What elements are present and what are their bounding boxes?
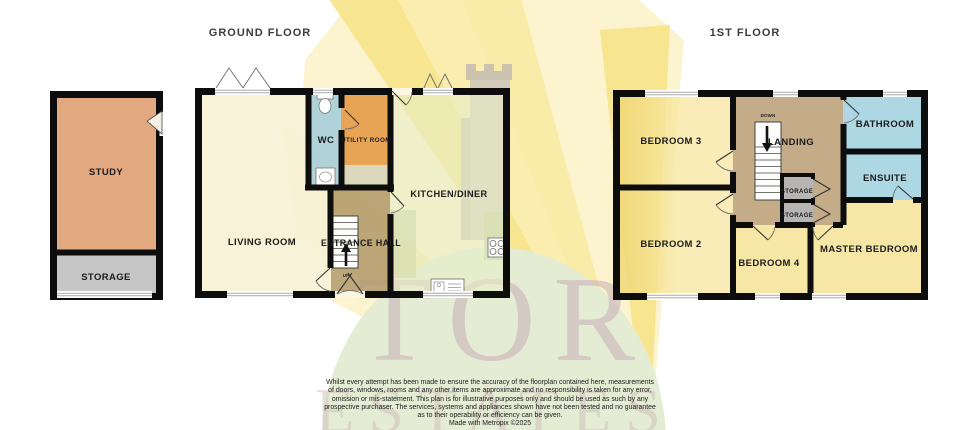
- kitchen-diner-label: KITCHEN/DINER: [410, 189, 487, 199]
- storage-upper-room: [782, 175, 813, 200]
- first-floor-plan: DOWN: [613, 90, 928, 300]
- disclaimer-line: of doors, windows, rooms and any other i…: [0, 387, 980, 395]
- bedroom4-label: BEDROOM 4: [738, 258, 799, 269]
- ensuite-label: ENSUITE: [863, 173, 907, 184]
- bedroom2-label: BEDROOM 2: [640, 239, 701, 250]
- disclaimer-line: Whilst every attempt has been made to en…: [0, 379, 980, 387]
- study-label: STUDY: [89, 167, 123, 178]
- storage-upper-label: STORAGE: [781, 189, 813, 195]
- landing-label: LANDING: [768, 137, 814, 148]
- ground-floor-title: GROUND FLOOR: [209, 27, 311, 39]
- disclaimer-text: Whilst every attempt has been made to en…: [0, 379, 980, 429]
- staircase-down: DOWN: [755, 113, 781, 200]
- ground-floor-plan: UP: [195, 68, 510, 298]
- floorplan-canvas: TOR ESTATES GROUND FLOOR 1ST FLOOR STUDY…: [0, 0, 980, 430]
- master-bedroom-window: [812, 293, 846, 300]
- first-floor-title: 1ST FLOOR: [710, 27, 781, 39]
- outbuilding-storage-label: STORAGE: [81, 272, 131, 283]
- storage-lower-label: STORAGE: [781, 213, 813, 219]
- bathroom-label: BATHROOM: [856, 119, 914, 130]
- bedroom4-window: [755, 293, 780, 300]
- bedroom3-window: [645, 90, 698, 97]
- living-room-window-top: [215, 68, 270, 95]
- wc-window: [313, 88, 333, 95]
- entrance-hall-label: ENTRANCE HALL: [321, 238, 401, 248]
- floorplan-page: TOR ESTATES GROUND FLOOR 1ST FLOOR STUDY…: [0, 0, 980, 430]
- bedroom2-window: [647, 293, 698, 300]
- living-room-label: LIVING ROOM: [228, 237, 296, 248]
- basin-icon: [316, 168, 335, 185]
- wc-label: WC: [318, 135, 335, 146]
- landing-window: [773, 90, 798, 97]
- storage-opening: [57, 291, 152, 298]
- living-room-window-bottom: [227, 291, 293, 298]
- bedroom3-label: BEDROOM 3: [640, 136, 701, 147]
- utility-room: [341, 88, 390, 165]
- disclaimer-line: omission or mis-statement. This plan is …: [0, 396, 980, 404]
- utility-room-label: UTILITY ROOM: [341, 137, 391, 144]
- outbuilding-plan: STUDY STORAGE: [50, 91, 167, 300]
- master-bedroom-label: MASTER BEDROOM: [820, 244, 918, 255]
- kitchen-window-bottom: [423, 291, 473, 298]
- disclaimer-credit: Made with Metropix ©2025: [0, 420, 980, 428]
- bathroom-window: [883, 90, 907, 97]
- disclaimer-line: prospective purchaser. The services, sys…: [0, 404, 980, 412]
- down-label: DOWN: [761, 113, 776, 118]
